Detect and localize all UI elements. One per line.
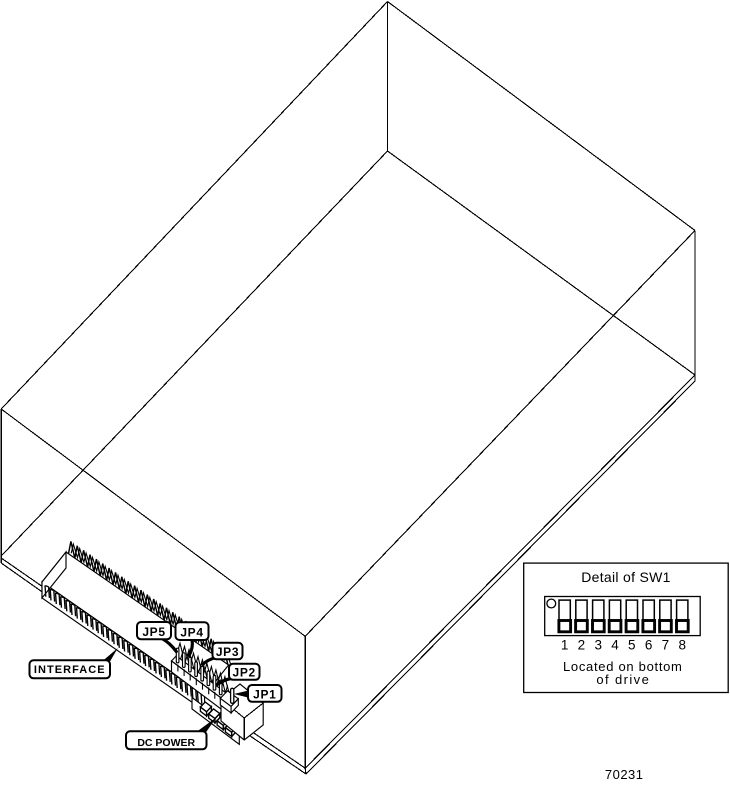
- svg-text:4: 4: [611, 638, 619, 653]
- svg-text:of drive: of drive: [596, 672, 650, 687]
- svg-text:1: 1: [561, 638, 569, 653]
- svg-text:2: 2: [578, 638, 586, 653]
- svg-text:8: 8: [678, 638, 686, 653]
- svg-text:DC POWER: DC POWER: [137, 737, 195, 749]
- svg-text:JP3: JP3: [216, 645, 239, 659]
- svg-text:INTERFACE: INTERFACE: [34, 664, 106, 676]
- svg-text:JP2: JP2: [233, 665, 256, 679]
- svg-text:JP5: JP5: [142, 625, 165, 639]
- svg-text:3: 3: [594, 638, 602, 653]
- svg-text:Detail of SW1: Detail of SW1: [581, 569, 671, 585]
- svg-text:5: 5: [628, 638, 636, 653]
- svg-text:7: 7: [662, 638, 670, 653]
- svg-text:JP4: JP4: [180, 626, 203, 640]
- svg-text:6: 6: [645, 638, 653, 653]
- svg-text:JP1: JP1: [253, 687, 276, 701]
- svg-text:70231: 70231: [605, 767, 644, 782]
